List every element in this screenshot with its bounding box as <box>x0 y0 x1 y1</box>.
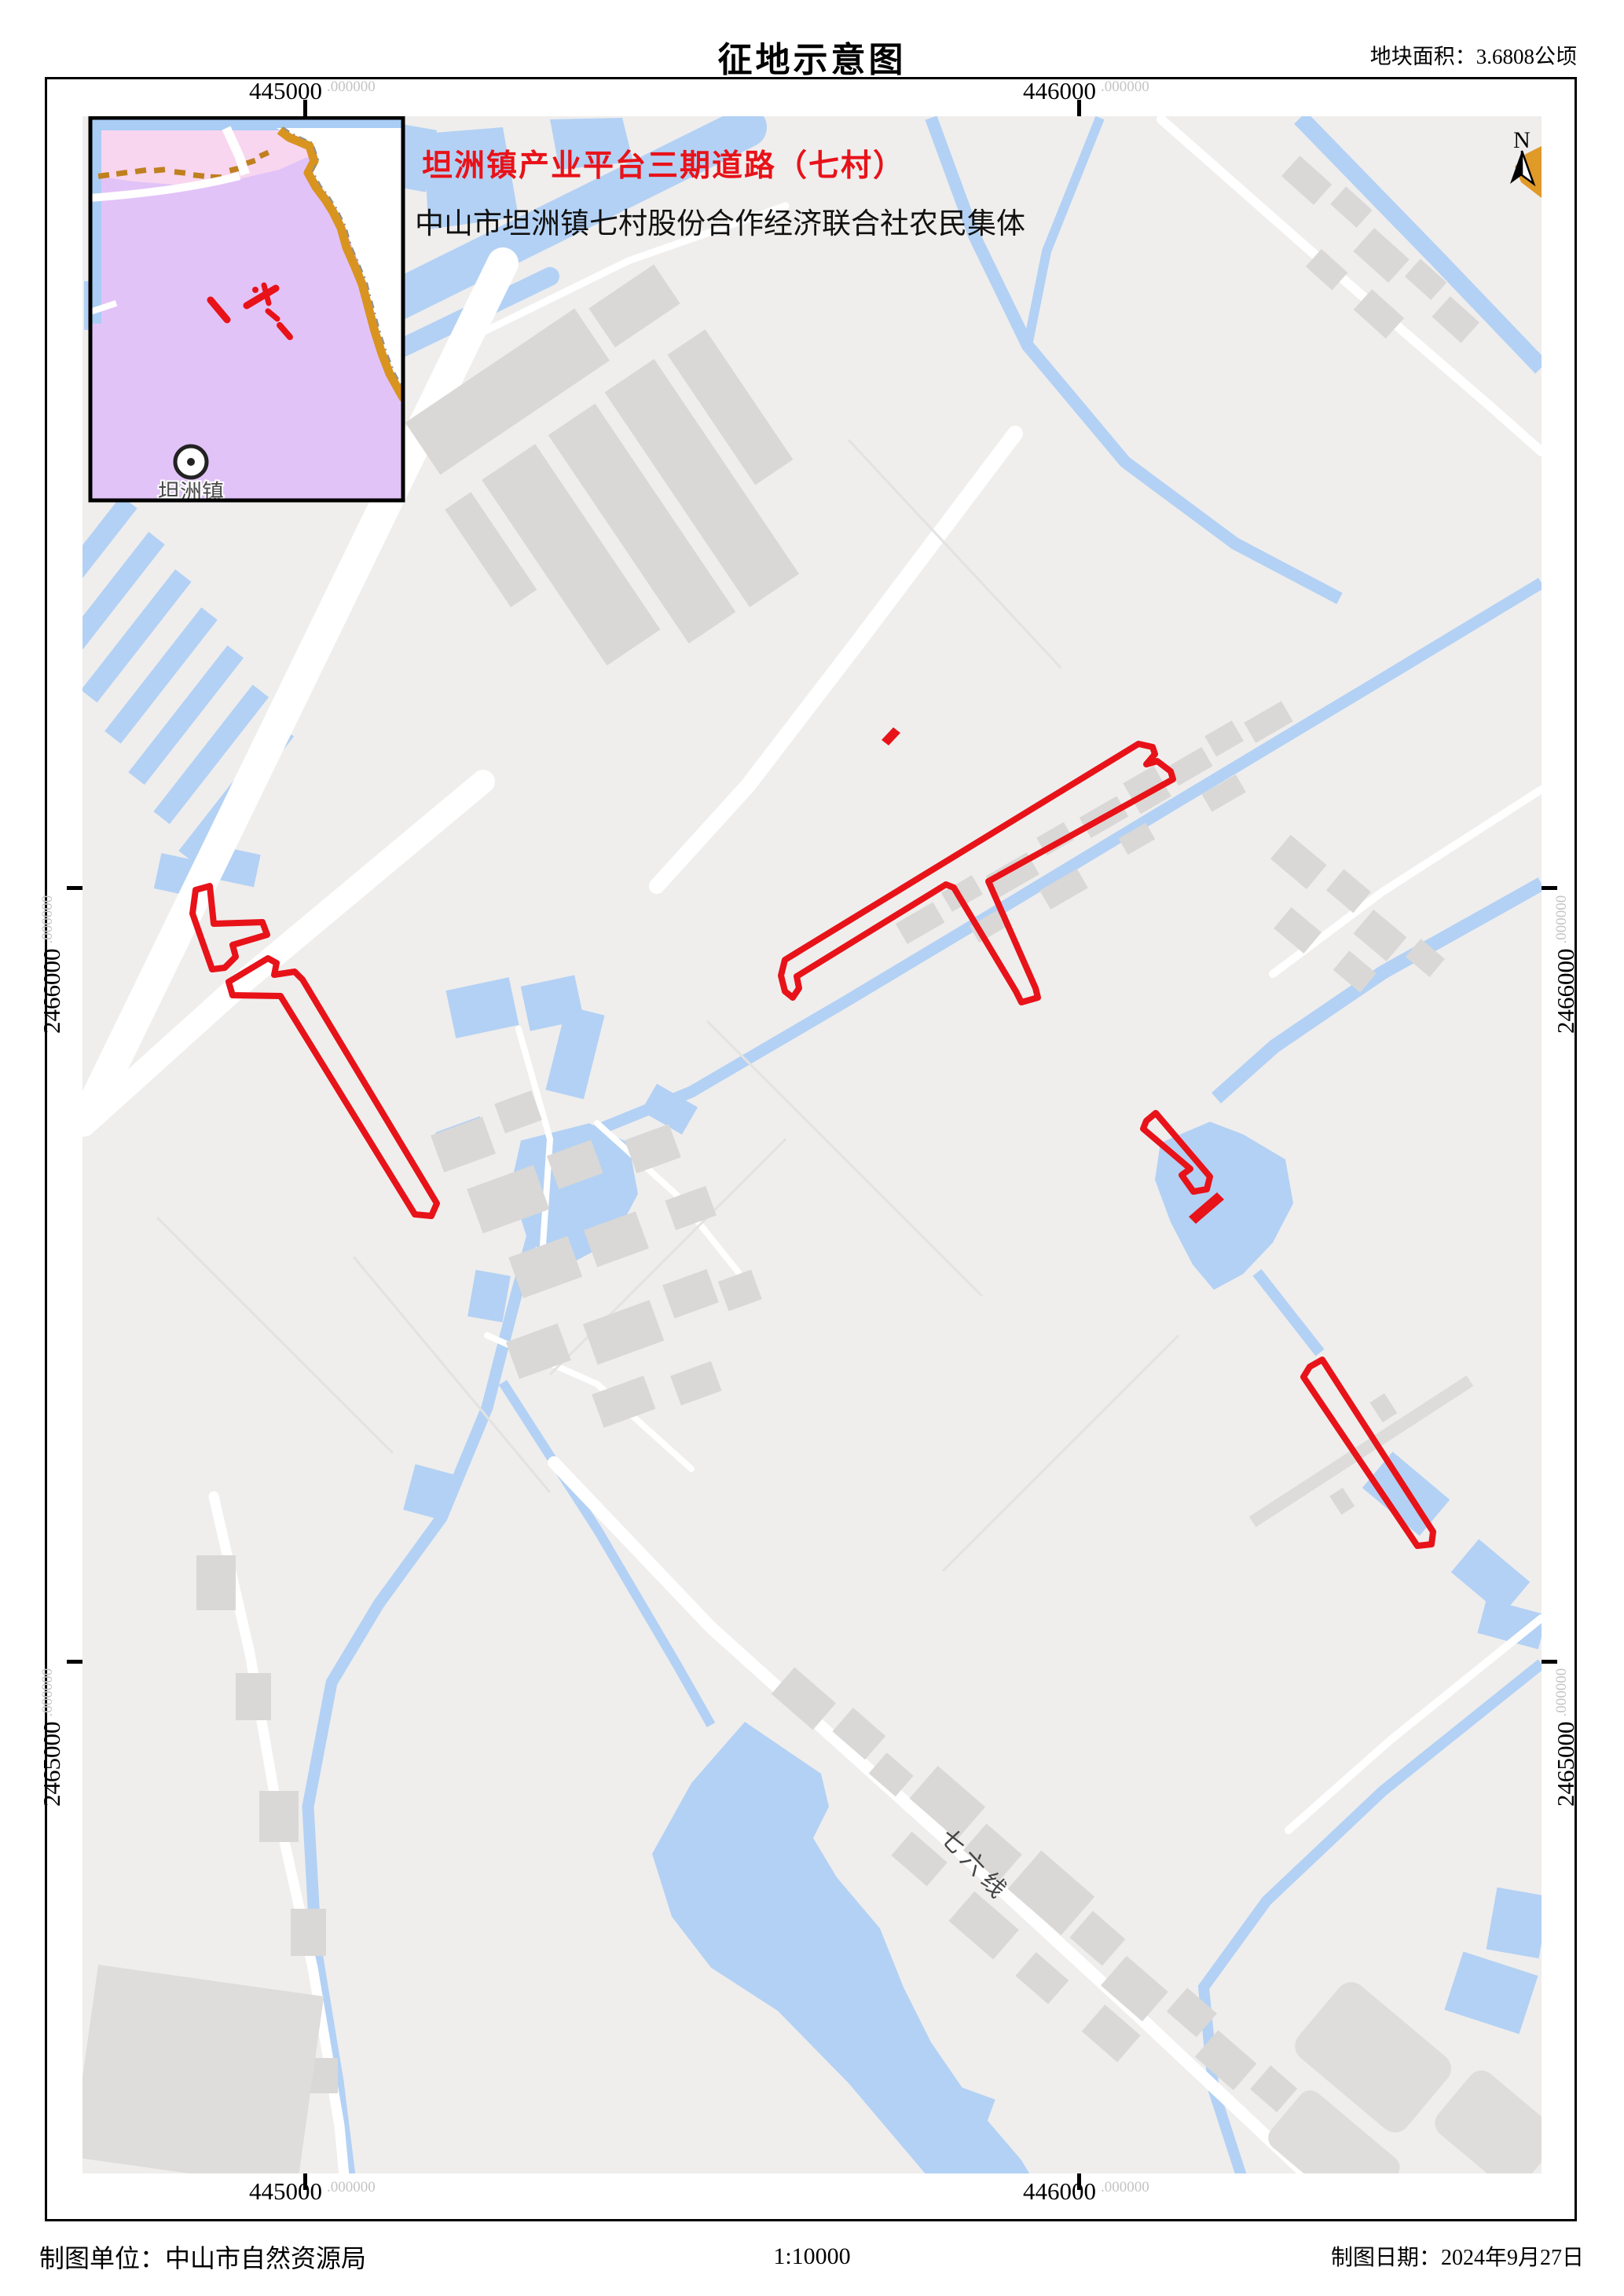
coord-left-lower: 2465000.000000 <box>38 1668 66 1807</box>
bottomleft-gray-area <box>82 1965 324 2173</box>
footer-scale: 1:10000 <box>773 2243 850 2270</box>
map-canvas: 七六线 N <box>82 116 1542 2173</box>
town-symbol-dot <box>187 458 195 466</box>
grid-tick-left-upper <box>67 886 82 890</box>
grid-tick-right-lower <box>1542 1660 1557 1664</box>
grid-tick-right-upper <box>1542 886 1557 890</box>
coord-bottom-right: 446000.000000 <box>1023 2177 1149 2206</box>
map-frame: 七六线 N <box>82 116 1542 2173</box>
coord-right-lower: 2465000.000000 <box>1552 1668 1580 1807</box>
coord-right-upper: 2466000.000000 <box>1552 895 1580 1034</box>
map-sheet: 七六线 N <box>0 0 1624 2296</box>
north-label: N <box>1513 127 1531 153</box>
plot-area-label: 地块面积：3.6808公顷 <box>1370 39 1577 70</box>
coord-bottom-left: 445000.000000 <box>249 2177 376 2206</box>
footer-agency: 制图单位：中山市自然资源局 <box>39 2239 366 2275</box>
inset-map: 坦洲镇 <box>90 118 404 505</box>
footer-date: 制图日期：2024年9月27日 <box>1331 2240 1584 2272</box>
project-title: 坦洲镇产业平台三期道路（七村） <box>422 141 905 185</box>
coord-top-left: 445000.000000 <box>249 77 376 105</box>
grid-tick-left-lower <box>67 1660 82 1664</box>
coord-top-right: 446000.000000 <box>1023 77 1149 105</box>
owner-collective-label: 中山市坦洲镇七村股份合作经济联合社农民集体 <box>415 200 1025 242</box>
page-title: 征地示意图 <box>718 31 907 82</box>
coord-left-upper: 2466000.000000 <box>38 895 66 1034</box>
